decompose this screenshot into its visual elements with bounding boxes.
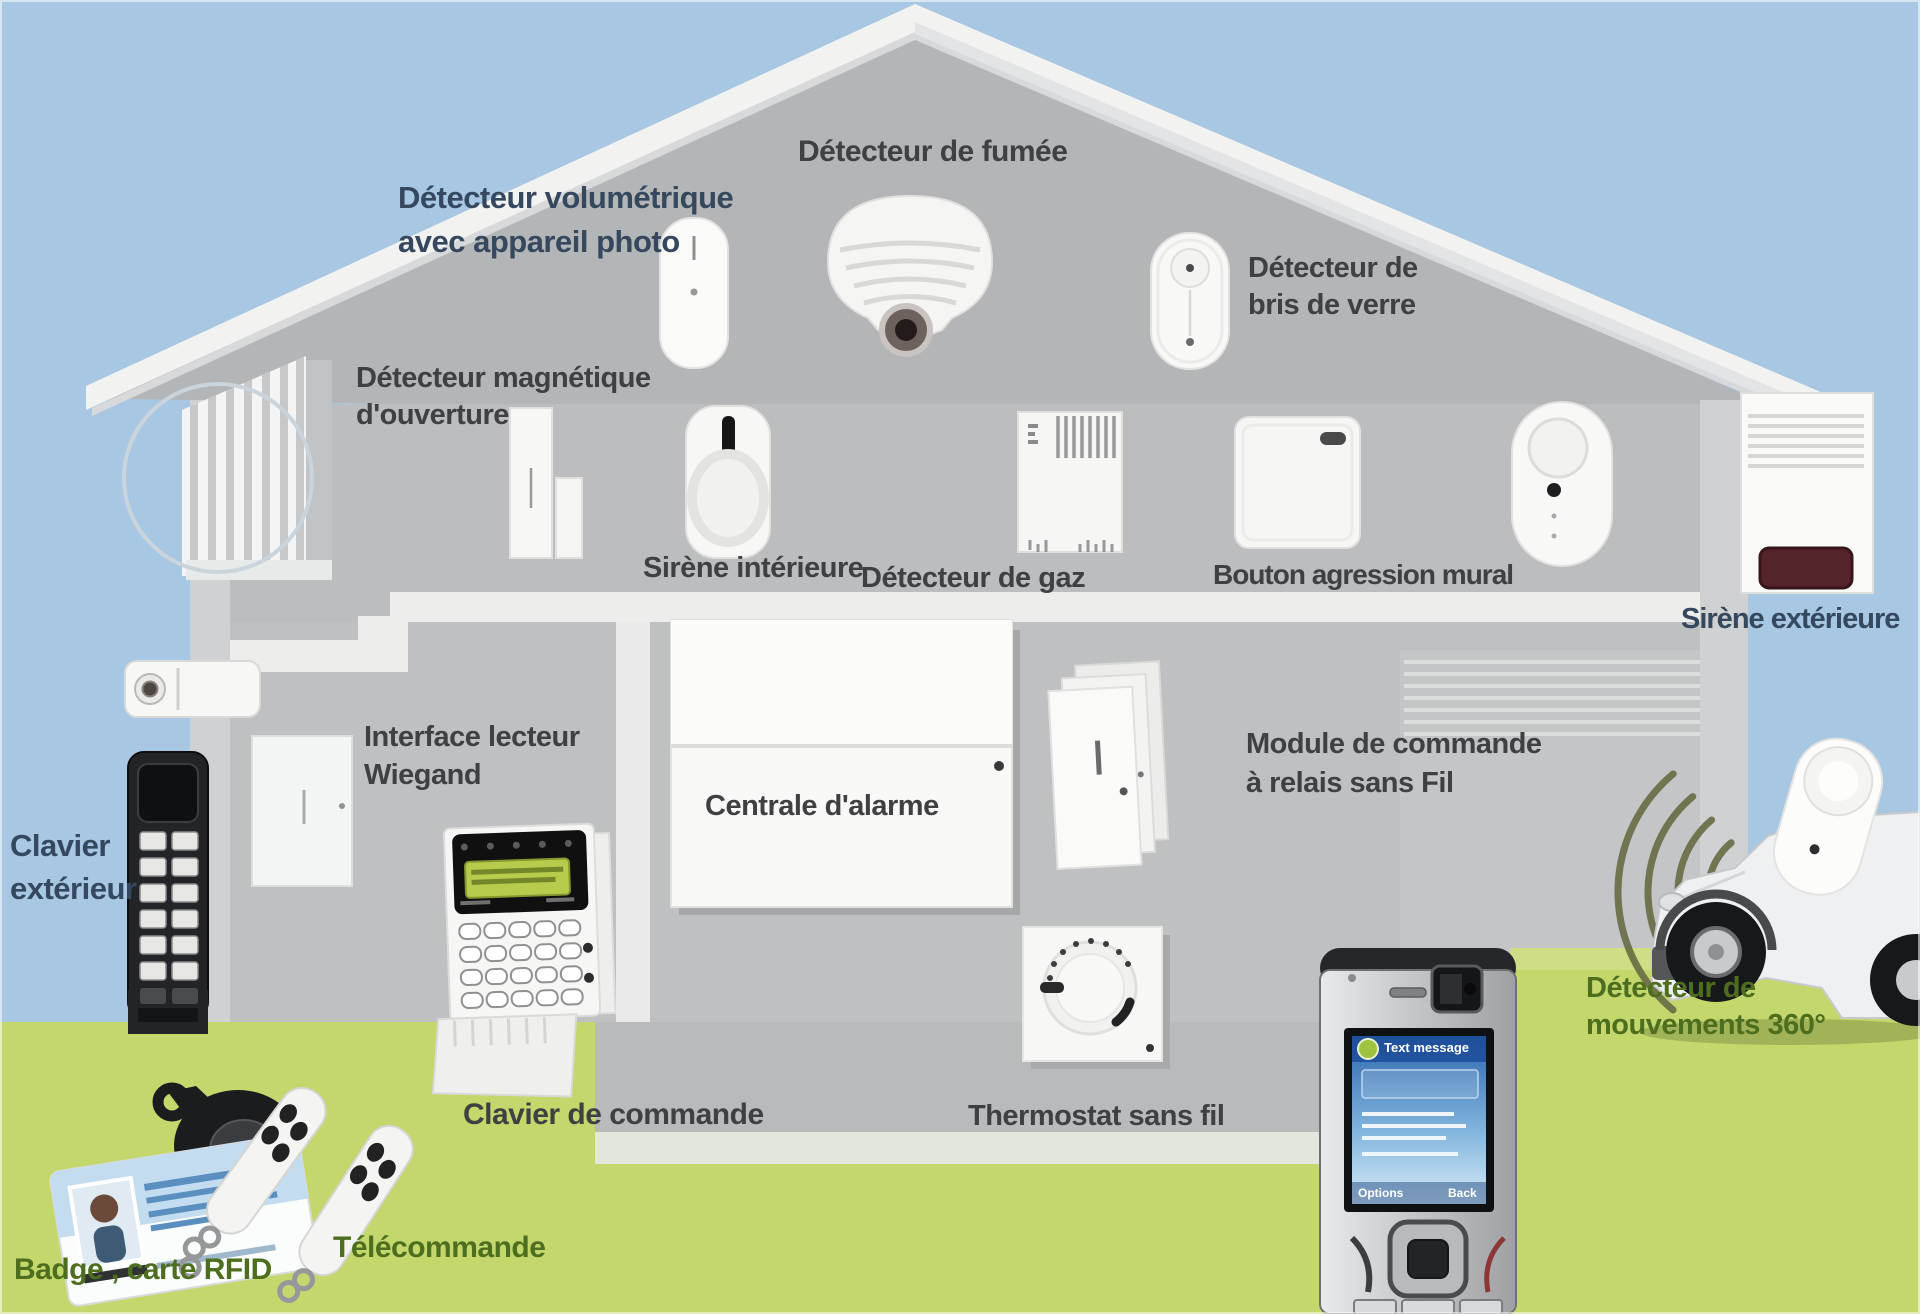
label-relay-module: Module de commande à relais sans Fil: [1246, 725, 1542, 803]
outdoor-siren: [1741, 393, 1873, 593]
label-thermostat: Thermostat sans fil: [968, 1098, 1224, 1134]
label-indoor-siren: Sirène intérieure: [643, 550, 863, 586]
indoor-siren: [686, 406, 770, 558]
label-motion-detector: Détecteur de mouvements 360°: [1586, 970, 1825, 1044]
wall-panic-button: [1235, 417, 1360, 548]
thermostat-device: [1023, 927, 1170, 1069]
label-outdoor-siren: Sirène extérieure: [1681, 601, 1899, 637]
interior-door: [252, 736, 352, 886]
phone-softkey-right: Back: [1448, 1186, 1477, 1200]
relay-module: [1047, 661, 1169, 869]
phone-header-text: Text message: [1384, 1040, 1469, 1055]
gas-detector: [1018, 412, 1122, 552]
glass-break-detector: [1151, 233, 1229, 369]
alarm-panel: [671, 620, 1020, 915]
phone-softkey-left: Options: [1358, 1186, 1403, 1200]
label-badge-rfid: Badge , carte RFID: [14, 1252, 272, 1288]
label-remote: Télécommande: [333, 1230, 545, 1266]
mobile-phone: [1320, 948, 1516, 1314]
label-glass-break-detector: Détecteur de bris de verre: [1248, 250, 1418, 324]
scene-svg: [0, 0, 1920, 1314]
diagram-canvas: Détecteur volumétrique avec appareil pho…: [0, 0, 1920, 1314]
label-wiegand-interface: Interface lecteur Wiegand: [364, 718, 580, 794]
label-outdoor-keypad: Clavier extérieur: [10, 824, 136, 910]
label-volumetric-detector: Détecteur volumétrique avec appareil pho…: [398, 176, 733, 264]
label-panic-button: Bouton agression mural: [1213, 557, 1513, 593]
label-smoke-detector: Détecteur de fumée: [798, 134, 1067, 170]
label-gas-detector: Détecteur de gaz: [861, 560, 1085, 596]
label-magnetic-detector: Détecteur magnétique d'ouverture: [356, 360, 651, 434]
badge-reader: [125, 661, 260, 717]
oval-button-device: [1512, 402, 1612, 566]
label-command-keypad: Clavier de commande: [463, 1097, 764, 1133]
outdoor-keypad: [128, 752, 208, 1034]
label-alarm-panel: Centrale d'alarme: [705, 788, 939, 824]
